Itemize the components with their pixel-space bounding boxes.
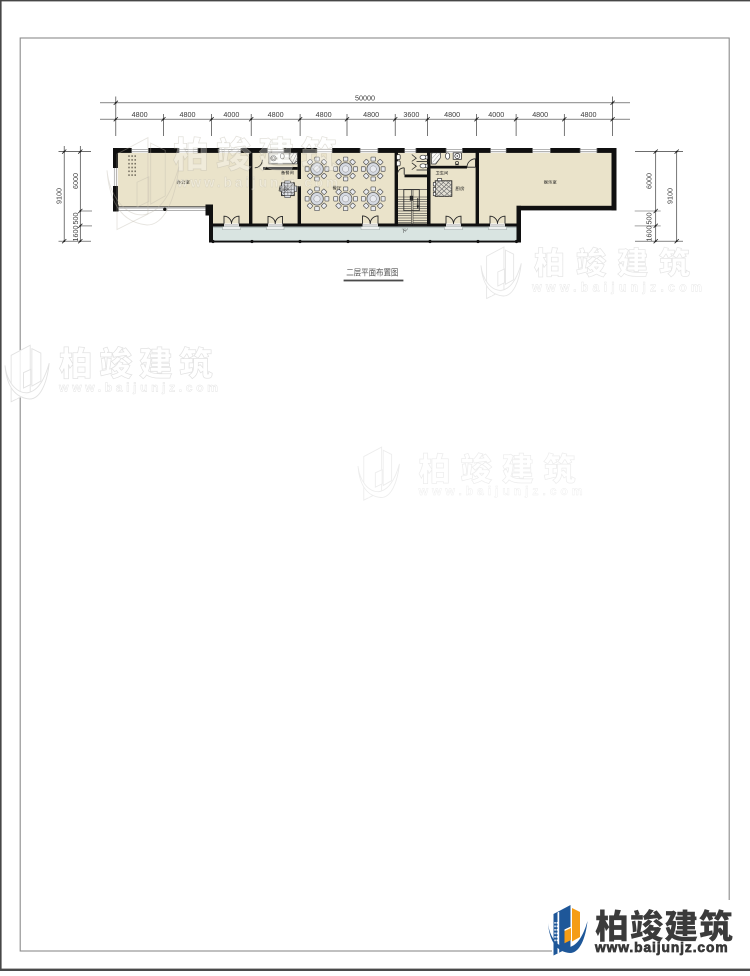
svg-text:www.baijunjz.com: www.baijunjz.com <box>58 381 220 395</box>
svg-text:6000: 6000 <box>644 173 653 189</box>
svg-text:1600: 1600 <box>644 226 653 242</box>
svg-text:4800: 4800 <box>268 110 284 119</box>
svg-text:4800: 4800 <box>444 110 460 119</box>
svg-text:3600: 3600 <box>403 110 419 119</box>
svg-text:500: 500 <box>644 213 653 225</box>
svg-text:1600: 1600 <box>71 226 80 242</box>
svg-text:4800: 4800 <box>532 110 548 119</box>
svg-text:www.baijunjz.com: www.baijunjz.com <box>594 940 730 955</box>
svg-text:9100: 9100 <box>665 188 674 204</box>
svg-text:4800: 4800 <box>316 110 332 119</box>
svg-text:4800: 4800 <box>132 110 148 119</box>
svg-text:www.baijunjz.com: www.baijunjz.com <box>531 281 704 295</box>
svg-text:50000: 50000 <box>355 94 375 103</box>
svg-text:4000: 4000 <box>488 110 504 119</box>
svg-text:www.baijunjz.com: www.baijunjz.com <box>176 175 340 190</box>
svg-text:www.baijunjz.com: www.baijunjz.com <box>418 484 585 498</box>
svg-text:4800: 4800 <box>180 110 196 119</box>
svg-text:4800: 4800 <box>581 110 597 119</box>
svg-text:9100: 9100 <box>55 188 64 204</box>
svg-text:4000: 4000 <box>223 110 239 119</box>
svg-text:6000: 6000 <box>71 173 80 189</box>
svg-text:500: 500 <box>71 213 80 225</box>
svg-text:4800: 4800 <box>363 110 379 119</box>
